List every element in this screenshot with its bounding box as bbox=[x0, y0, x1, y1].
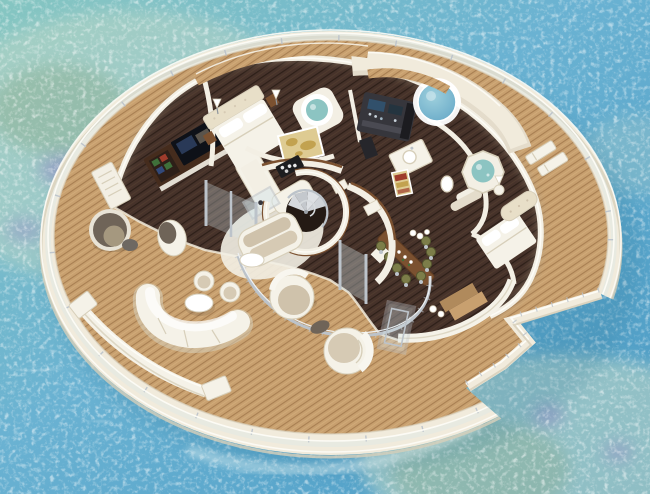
floating-resort-render: Turquoise sea with coral reef patches bbox=[0, 0, 650, 494]
floating-platform: Circular floating platform with white hu… bbox=[40, 30, 622, 457]
barrel-chair bbox=[220, 282, 240, 302]
render-stage: Turquoise sea with coral reef patches bbox=[0, 0, 650, 494]
pit-table bbox=[240, 253, 264, 267]
deck-cocktail-table bbox=[185, 294, 215, 316]
toilet bbox=[441, 176, 453, 192]
barrel-chair bbox=[194, 271, 214, 291]
deck-ottoman bbox=[122, 239, 138, 251]
egg-daybed bbox=[324, 328, 373, 374]
